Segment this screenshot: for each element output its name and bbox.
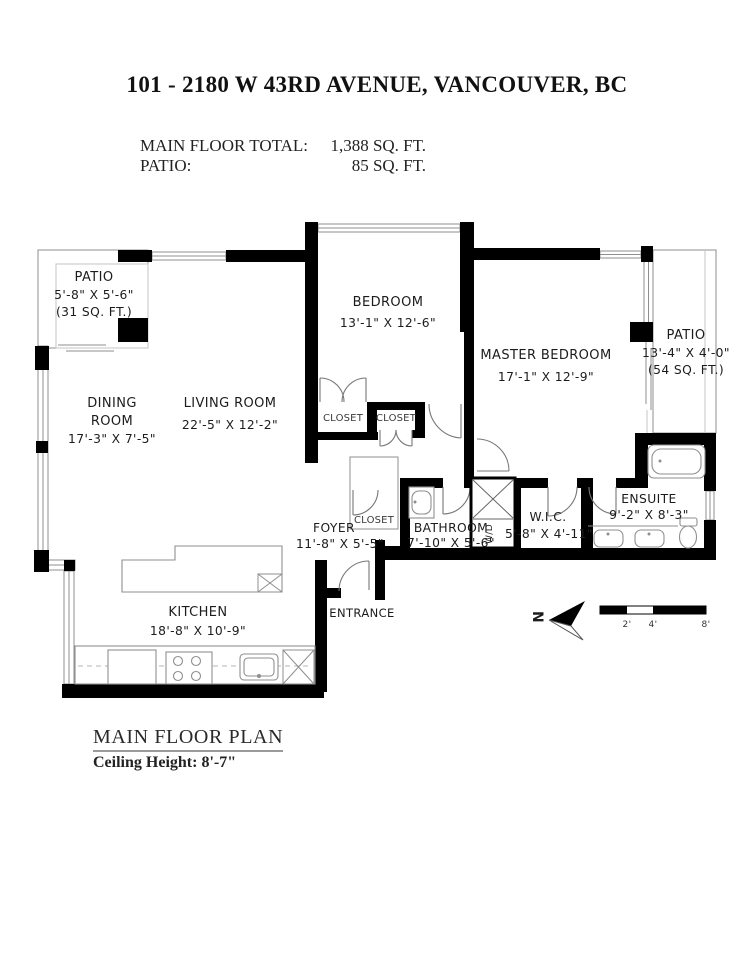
room-dims-patio-right: 13'-4" X 4'-0" [642, 346, 730, 360]
room-label-wic: W.I.C. [529, 510, 566, 524]
room-label-kitchen: KITCHEN [168, 605, 227, 620]
room-dims-patio-left: 5'-8" X 5'-6" [54, 288, 134, 302]
fridge-icon [108, 650, 156, 684]
scale-tick: 4' [648, 620, 657, 630]
scale-bar: 2' 4' 8' [600, 606, 711, 630]
room-label-patio-right: PATIO [667, 328, 706, 343]
toilet-icon [680, 518, 698, 548]
room-label-foyer: FOYER [313, 521, 355, 535]
kitchen-island [122, 546, 282, 592]
room-dims-bedroom: 13'-1" X 12'-6" [340, 316, 436, 330]
room-dims-foyer: 11'-8" X 5'-5" [296, 537, 384, 551]
bathtub-icon [648, 445, 705, 478]
room-dims-ensuite: 9'-2" X 8'-3" [609, 508, 689, 522]
kitchen-sink-icon [240, 654, 278, 680]
room-label-dining: DINING [87, 396, 137, 411]
room-label-bathroom: BATHROOM [414, 521, 488, 535]
room-label-dining-2: ROOM [91, 414, 133, 429]
ensuite-vanity [588, 526, 678, 547]
north-arrow-icon: N [529, 601, 585, 640]
plan-name: MAIN FLOOR PLAN [93, 726, 283, 752]
bathroom-sink-icon [409, 487, 434, 518]
washer-dryer-label: W/D [485, 524, 495, 544]
walls [34, 222, 716, 698]
scale-tick: 2' [622, 620, 631, 630]
stove-icon [166, 652, 212, 684]
room-dims-dining: 17'-3" X 7'-5" [68, 432, 156, 446]
entrance-label: ENTRANCE [329, 606, 394, 620]
room-label-bedroom: BEDROOM [353, 295, 424, 310]
room-dims-living: 22'-5" X 12'-2" [182, 418, 278, 432]
room-dims-wic: 5'-8" X 4'-11" [505, 527, 593, 541]
plan-footer: MAIN FLOOR PLAN Ceiling Height: 8'-7" [93, 726, 283, 772]
ceiling-height: Ceiling Height: 8'-7" [93, 754, 283, 772]
room-label-master: MASTER BEDROOM [480, 348, 611, 363]
room-dims-master: 17'-1" X 12'-9" [498, 370, 594, 384]
floor-plan-drawing: N 2' 4' 8' PATIO 5'-8" X 5'-6" (31 SQ. F… [0, 0, 754, 960]
room-label-ensuite: ENSUITE [621, 492, 676, 506]
room-dims-kitchen: 18'-8" X 10'-9" [150, 624, 246, 638]
room-area-patio-right: (54 SQ. FT.) [648, 363, 724, 377]
floor-plan-page: 101 - 2180 W 43RD AVENUE, VANCOUVER, BC … [0, 0, 754, 960]
scale-tick: 8' [701, 620, 710, 630]
closet-label: CLOSET [376, 413, 417, 424]
room-label-living: LIVING ROOM [184, 396, 277, 411]
svg-text:N: N [529, 611, 545, 623]
closet-label: CLOSET [354, 515, 395, 526]
closet-label: CLOSET [323, 413, 364, 424]
room-dims-bathroom: 7'-10" X 5'-6" [407, 536, 495, 550]
room-label-patio-left: PATIO [75, 270, 114, 285]
room-area-patio-left: (31 SQ. FT.) [56, 305, 132, 319]
